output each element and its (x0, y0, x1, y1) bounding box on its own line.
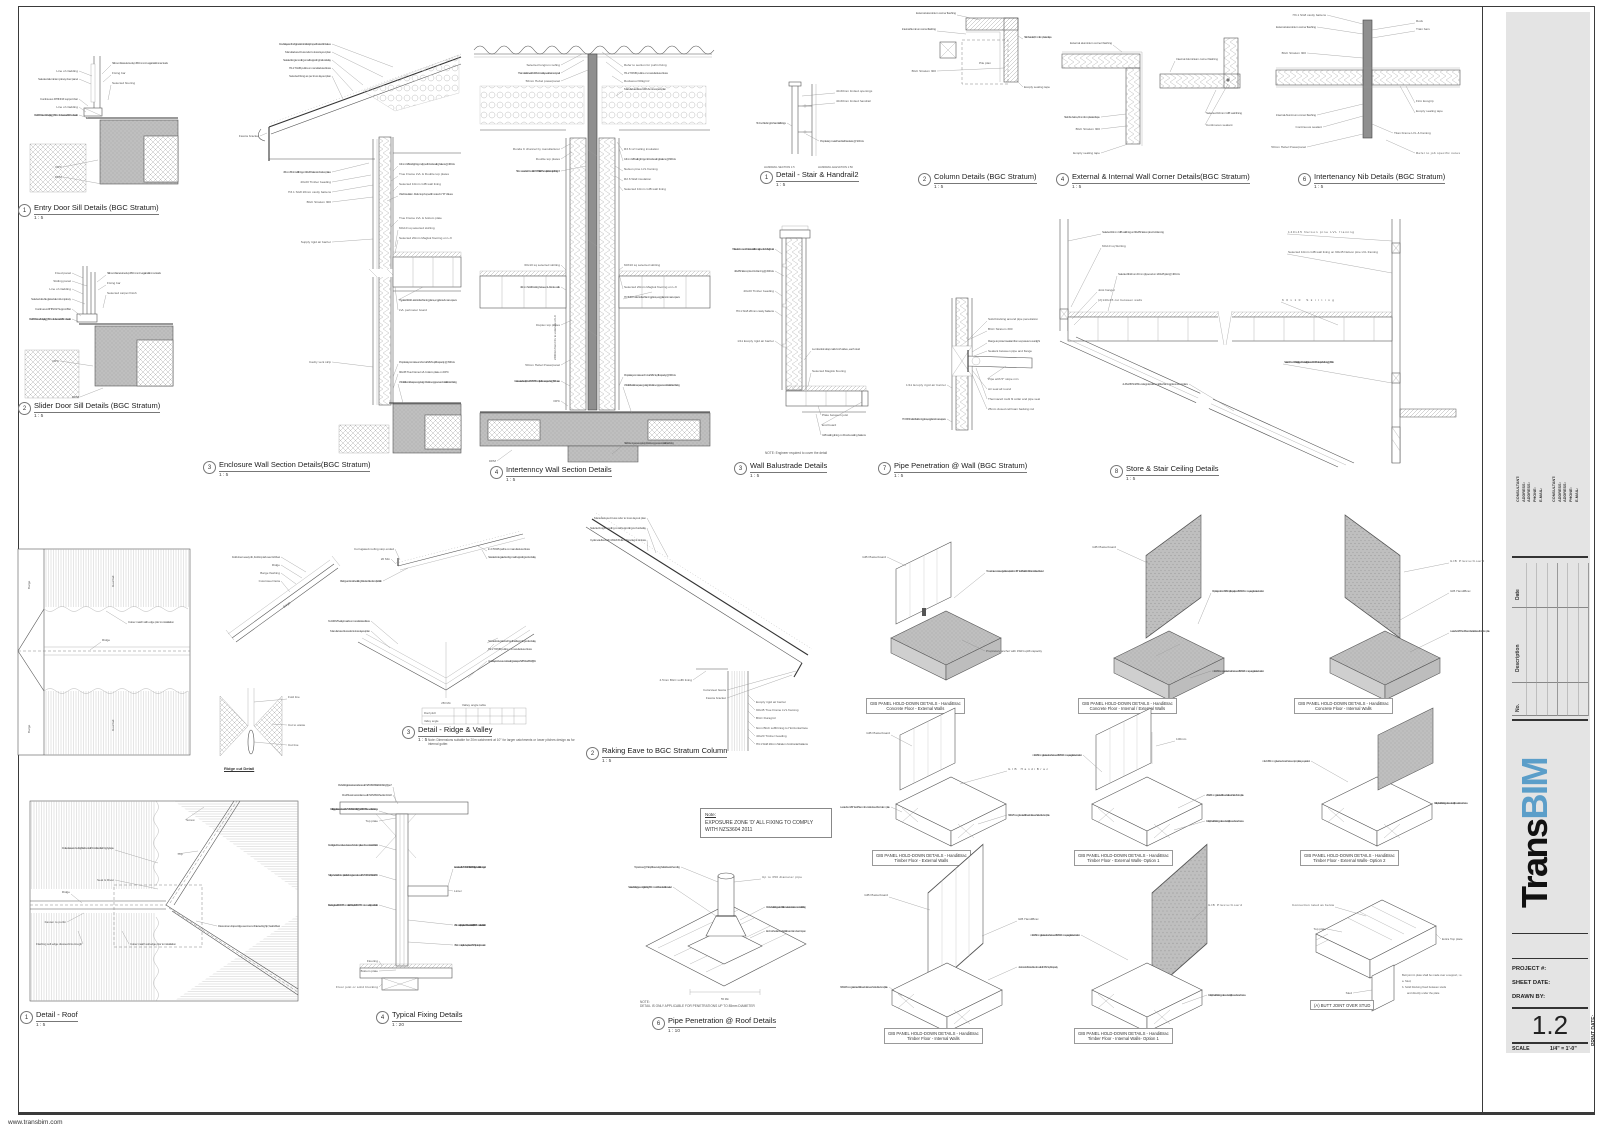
svg-text:True Frame LVL & Double top pl: True Frame LVL & Double top plates (399, 172, 449, 176)
svg-text:Double layers of Ceiling insul: Double layers of Ceiling insulation. Ref… (279, 42, 331, 46)
svg-text:Dress crown of apex ridge over: Dress crown of apex ridge over crown of … (218, 924, 280, 928)
svg-text:Plate between joist: Plate between joist (822, 413, 848, 417)
svg-text:LVL perimeter board: LVL perimeter board (399, 308, 427, 312)
svg-text:Internal Aluminium corner flas: Internal Aluminium corner flashing (1176, 57, 1218, 61)
svg-text:Fold line: Fold line (288, 695, 300, 699)
detail-scale: 1 : 5 (776, 183, 859, 188)
gib-iso-concrete-external-drawing: GIB Plasterboard To maximise concrete ed… (866, 528, 1050, 698)
consultant-block-1: CONSULTANT: ADDRESS: ADDRESS: PHONE: E-M… (1516, 476, 1544, 502)
svg-text:2400mm from FFL to underside o: 2400mm from FFL to underside of LJI (553, 315, 557, 360)
svg-text:Barge: Barge (27, 580, 31, 589)
roof-plan-drawing: Barge Roof fall Ridge Colour match with … (10, 543, 200, 763)
svg-text:Locate the GIB HandiBrac on th: Locate the GIB HandiBrac on the inside f… (840, 805, 890, 809)
wall-corner-details-drawing: External aluminium corner flashing Stab … (1056, 18, 1246, 170)
svg-text:Rafter fixing to top plates in: Rafter fixing to top plates in accordanc… (330, 807, 378, 811)
detail-number: 4 (376, 1011, 389, 1024)
svg-text:Cavity vent strip: Cavity vent strip (309, 360, 331, 364)
svg-text:Cut line: Cut line (288, 743, 299, 747)
svg-text:Ronda C channel by manufacture: Ronda C channel by manufacturer (513, 147, 560, 151)
svg-text:End notched around profile rib: End notched around profile ribs and turn… (766, 929, 806, 933)
svg-text:DPM: DPM (489, 459, 496, 463)
svg-text:Wall insulation. Refer to job: Wall insulation. Refer to job specific n… (399, 192, 453, 196)
detail-scale: 1 : 5 (34, 414, 160, 419)
svg-text:Roof fall: Roof fall (111, 575, 115, 587)
caption-roof-detail: 1 Detail - Roof1 : 5 (20, 1010, 78, 1028)
svg-text:Thermakraft coverlab 407 roof: Thermakraft coverlab 407 roof underlay o… (518, 71, 560, 75)
gib-iso-timber-internal-opt1-drawing: GIB Plasterboard m12 x 150mm galvanised … (1058, 876, 1248, 1032)
svg-text:m12 x 150mm galvanised coach s: m12 x 150mm galvanised coach screw and 5… (1032, 753, 1082, 757)
svg-text:Roof Truss in accordance with: Roof Truss in accordance with NZS3604 Se… (342, 793, 392, 797)
detail-number: 8 (1110, 465, 1123, 478)
svg-text:250 Min: 250 Min (441, 701, 451, 705)
svg-text:Plashguard or notched trailing: Plashguard or notched trailing folded an… (340, 579, 382, 583)
detail-number: 2 (918, 173, 931, 186)
svg-text:Slab thickening as per eng des: Slab thickening as per eng design. Refer… (624, 441, 674, 445)
svg-text:GIB Plasterboard: GIB Plasterboard (864, 893, 888, 897)
svg-text:Selected corrugated roofing on: Selected corrugated roofing on self supp… (488, 555, 536, 559)
detail-scale: 1 : 5 (1126, 477, 1219, 482)
svg-text:Pipe with 5° slope min: Pipe with 5° slope min (988, 377, 1019, 381)
butt-joint-label: (A) BUTT JOINT OVER STUD (1310, 1000, 1374, 1010)
svg-text:40-60mm limited openings: 40-60mm limited openings (836, 89, 873, 93)
svg-text:Roof fall: Roof fall (111, 719, 115, 731)
svg-text:BGC Stratum 300: BGC Stratum 300 (912, 69, 937, 73)
svg-text:Refer to section for purlin fi: Refer to section for purlin fixing (624, 63, 667, 67)
svg-text:Top plate: Top plate (1313, 927, 1326, 931)
svg-text:In 2 70X45 purlins on manufact: In 2 70X45 purlins on manufactured truss (488, 547, 530, 551)
note-text: DETAIL IS ONLY APPLICABLE FOR PENETRATIO… (640, 1004, 810, 1008)
detail-title: Wall Balustrade Details (750, 461, 827, 473)
store-stair-ceiling-drawing: Selected 10mm GIB wall lining on 90x45 N… (1038, 213, 1480, 467)
svg-text:Fixing bar: Fixing bar (112, 71, 126, 75)
svg-text:and directly under the plate: and directly under the plate (1407, 991, 1440, 995)
detail-number: 1 (18, 204, 31, 217)
svg-text:8G x 40 SS Screws & Rawl plug: 8G x 40 SS Screws & Rawl plug @ 150mm fr… (34, 113, 78, 117)
caption-wall-balustrade: 3 Wall Balustrade Details1 : 5 (734, 461, 827, 479)
svg-text:Doubling stud to be continuous: Doubling stud to be continuous between t… (328, 843, 378, 847)
enclosure-wall-section-drawing: Double layers of Ceiling insulation. Ref… (203, 33, 463, 447)
svg-text:DPC: DPC (52, 359, 59, 363)
caption-wall-corner: 4 External & Internal Wall Corner Detail… (1056, 172, 1250, 190)
svg-text:25mm closed cell foam backing: 25mm closed cell foam backing rod (988, 407, 1034, 411)
svg-text:Valley angle table: Valley angle table (462, 703, 486, 707)
column-details-drawing: External aluminium corner flashing Inter… (896, 8, 1054, 170)
caption-typical-fixing: 4 Typical Fixing Details1 : 20 (376, 1010, 462, 1028)
svg-text:Selected 20mm Maglok flooring: Selected 20mm Maglok flooring on LJI (399, 236, 452, 240)
detail-title: Pipe Penetration @ Roof Details (668, 1016, 776, 1028)
svg-text:Fold down every rib, Fold top: Fold down every rib, Fold top tab over &… (232, 555, 280, 559)
svg-text:Up to 350 diameter pipe: Up to 350 diameter pipe (762, 875, 802, 879)
svg-text:Colour match soft edge prior t: Colour match soft edge prior to installa… (130, 942, 176, 946)
svg-text:Selected longrun roofing on se: Selected longrun roofing on self support… (283, 58, 331, 62)
svg-text:Selected 10mm GIB wall lining: Selected 10mm GIB wall lining (399, 182, 441, 186)
svg-text:Supply rigid air barrier: Supply rigid air barrier (301, 240, 331, 244)
svg-text:Sealant between pipe and flang: Sealant between pipe and flange (988, 349, 1032, 353)
svg-text:m12 x 150mm galvanised coach s: m12 x 150mm galvanised coach screw or pr… (1262, 759, 1310, 763)
svg-text:H3.1 SG8 20mm Stratum horizont: H3.1 SG8 20mm Stratum horizontal battens (756, 742, 808, 746)
svg-text:Line of cladding: Line of cladding (56, 69, 78, 73)
svg-text:GIB Plasterboard: GIB Plasterboard (862, 555, 886, 559)
detail-scale: 1 : 5 (506, 478, 612, 483)
svg-text:Ridge: Ridge (272, 563, 280, 567)
pipe-penetration-wall-drawing: Solid blocking around pipe penetration B… (876, 290, 1048, 448)
caption-raking-eave: 2 Raking Eave to BGC Stratum Column1 : 5 (586, 746, 727, 764)
svg-text:Manufactured truss GRK & manu: Manufactured truss GRK & manu specs plan (624, 87, 666, 91)
svg-text:Continuous RHINOZ support bar: Continuous RHINOZ support bar (40, 97, 78, 101)
svg-text:8G x 40 SS Screws & Rawl plug: 8G x 40 SS Screws & Rawl plug @ 150mm fr… (29, 317, 71, 321)
detail-number: 3 (203, 461, 216, 474)
svg-text:Continuous sealant: Continuous sealant (1206, 123, 1233, 127)
caption-stair-handrail: 1 Detail - Stair & Handrail21 : 5 (760, 170, 859, 188)
svg-text:Fixed panel: Fixed panel (55, 271, 71, 275)
svg-text:GIB HandiBrac: GIB HandiBrac (1450, 589, 1471, 593)
svg-text:Stud: Stud (1346, 991, 1353, 995)
svg-text:(2)140x45 cut between walls: (2)140x45 cut between walls (1098, 298, 1142, 302)
detail-number: 1 (20, 1011, 33, 1024)
detail-title: Enclosure Wall Section Details(BGC Strat… (219, 460, 370, 472)
revision-col-date: Date (1515, 589, 1521, 600)
wall-balustrade-drawing: Half-steel cut down end of balustrade at… (726, 220, 868, 452)
svg-text:Lumberlok strap nails both sid: Lumberlok strap nails both sides, each s… (812, 347, 860, 351)
gib-iso-concrete-internal-drawing: GIB Plasterboard GIB HandiBrac Locate th… (1300, 528, 1470, 698)
transbim-logo: TransBIM (1514, 758, 1556, 908)
svg-text:Cut to waste: Cut to waste (288, 723, 305, 727)
entry-door-sill-drawing: Line of cladding Selected aluminium join… (28, 52, 180, 202)
svg-text:Underlay continuous underneath: Underlay continuous underneath gutter as… (488, 659, 536, 663)
svg-text:Selected finish on 20mm plywoo: Selected finish on 20mm plywood on 140x4… (1118, 272, 1180, 276)
svg-text:Pile plan: Pile plan (979, 61, 991, 65)
svg-text:Double top plates: Double top plates (536, 157, 561, 161)
svg-text:Internal Aluminum corner flash: Internal Aluminum corner flashing (902, 27, 936, 31)
svg-text:HYJOIST - refer to floor frami: HYJOIST - refer to floor framing plans, … (902, 417, 946, 421)
svg-text:H3.1 SG8 20mm cavity battens: H3.1 SG8 20mm cavity battens (736, 309, 774, 313)
svg-text:Nailing schedules for bottom p: Nailing schedules for bottom plate to fl… (328, 873, 378, 877)
detail-title: Entry Door Sill Details (BGC Stratum) (34, 203, 159, 215)
svg-text:Whaffle floor slab as per eng: Whaffle floor slab as per eng design. Re… (399, 380, 457, 384)
detail-scale: 1 : 5 (934, 185, 1037, 190)
detail-title: Pipe Penetration @ Wall (BGC Stratum) (894, 461, 1027, 473)
svg-text:External aluminium corner flas: External aluminium corner flashing (1070, 41, 1112, 45)
svg-text:Train bars: Train bars (1416, 27, 1430, 31)
caption-intertenancy-wall: 4 Intertenncy Wall Section Details1 : 5 (490, 465, 612, 483)
svg-text:Cyclone tie fixed with 4 30x3.: Cyclone tie fixed with 4 30x3.15 dia. na… (590, 538, 646, 542)
gib-iso-timber-external-opt1-drawing: 100mm m12 x 150mm galvanised coach screw… (1058, 712, 1248, 857)
ridge-valley-drawing: Corrugated roofing stop ended 20 Min Pla… (338, 522, 573, 727)
svg-text:Proprietary anchor with 15kN u: Proprietary anchor with 15kN uplift capa… (986, 649, 1042, 653)
butt-joint-drawing: Connection rated as below Top plate Extr… (1286, 876, 1476, 1008)
svg-text:Screw: Screw (186, 818, 195, 822)
detail-title: Store & Stair Ceiling Details (1126, 464, 1219, 476)
svg-text:DPM: DPM (72, 395, 79, 399)
svg-text:m12 x 150mm galvanised coach s: m12 x 150mm galvanised coach screw and 5… (1030, 933, 1080, 937)
svg-text:Seal & Rivet: Seal & Rivet (97, 878, 114, 882)
svg-text:40-60mm limited handrail: 40-60mm limited handrail (836, 99, 871, 103)
svg-text:Ecoply sealing tape: Ecoply sealing tape (1024, 85, 1050, 89)
svg-text:Ridge: Ridge (102, 638, 110, 642)
detail-title: Slider Door Sill Details (BGC Stratum) (34, 401, 160, 413)
svg-text:Full depth solid blocking posi: Full depth solid blocking positioned cen… (1434, 801, 1469, 805)
titleblock-rule (1512, 556, 1588, 558)
detail-scale: 1 : 5 (1314, 185, 1445, 190)
titleblock-rule (1512, 933, 1588, 934)
svg-text:Corrugated roofing stop ended: Corrugated roofing stop ended (354, 547, 394, 551)
svg-text:Selected longrun roofing: Selected longrun roofing (526, 63, 560, 67)
svg-text:6 / 30x2.5mm galvanised flat h: 6 / 30x2.5mm galvanised flat head nails … (1008, 813, 1050, 817)
revision-table-grid (1526, 563, 1589, 716)
svg-text:35x1mm strap fixed over plate: 35x1mm strap fixed over plate or a 7.5kN… (454, 943, 486, 947)
svg-text:HANDRAIL ELEVATION 1:50: HANDRAIL ELEVATION 1:50 (818, 165, 853, 169)
detail-title: Detail - Ridge & Valley (418, 725, 492, 737)
detail-title: Column Details (BGC Stratum) (934, 172, 1037, 184)
gib-label-4: GIB PANEL HOLD-DOWN DETAILS - HandiBracT… (872, 850, 971, 866)
svg-text:Extra Top plate: Extra Top plate (1442, 937, 1463, 941)
svg-text:Proprietary anchor with 15kN u: Proprietary anchor with 15kN uplift capa… (1212, 589, 1264, 593)
svg-text:Selected longrun roofing on se: Selected longrun roofing on self support… (590, 526, 646, 530)
typical-fixing-drawing: Purlins Fixing to truss in accordance wi… (316, 776, 488, 1016)
svg-text:Continuous sealant: Continuous sealant (1296, 125, 1323, 129)
consultant-block-2: CONSULTANT: ADDRESS: ADDRESS: PHONE: E-M… (1552, 476, 1580, 502)
svg-text:External aluminium corner flas: External aluminium corner flashing (916, 11, 956, 15)
gib-iso-concrete-int-ext-drawing: GIB Plasterboard Proprietary anchor with… (1086, 528, 1270, 698)
svg-text:50mm Hebel Powerpanel: 50mm Hebel Powerpanel (1271, 145, 1306, 149)
detail-scale: 1 : 5 (34, 216, 159, 221)
svg-text:True Frame LVL & bottom plate: True Frame LVL & bottom plate (399, 216, 442, 220)
svg-text:Firm Ecogrip: Firm Ecogrip (1416, 99, 1434, 103)
svg-text:140x45 Nelson pine LVL framing: 140x45 Nelson pine LVL framing (1288, 230, 1354, 234)
svg-text:Manufactured truss refer to tr: Manufactured truss refer to truss layout… (285, 50, 331, 54)
svg-text:20 Min: 20 Min (381, 557, 391, 561)
svg-text:R3.6 x2 Ceiling insulation: R3.6 x2 Ceiling insulation (624, 147, 659, 151)
caption-store-stair: 8 Store & Stair Ceiling Details1 : 5 (1110, 464, 1219, 482)
svg-text:13mm GIB ceiling lining on Ron: 13mm GIB ceiling lining on Ronda ceiling… (624, 157, 676, 161)
sheet-date-label: SHEET DATE: (1512, 980, 1550, 986)
svg-text:GIB Plasterboard: GIB Plasterboard (1450, 559, 1484, 563)
svg-text:6 x 100X25 valley boards on ma: 6 x 100X25 valley boards on manufactured… (328, 619, 370, 623)
ridge-cut-caption: Ridge cut Detail (224, 766, 254, 771)
detail-scale: 1 : 5 (602, 759, 727, 764)
caption-enclosure-wall: 3 Enclosure Wall Section Details(BGC Str… (203, 460, 370, 478)
detail-title: Detail - Roof (36, 1010, 78, 1022)
svg-text:Barge: Barge (27, 724, 31, 733)
detail-number: 3 (734, 462, 747, 475)
svg-text:2 / 30x2.5mm galvanised flat h: 2 / 30x2.5mm galvanised flat head nails … (1206, 793, 1244, 797)
svg-text:60x10 Skirting: 60x10 Skirting (1282, 298, 1334, 302)
svg-text:BGC Duragrid: BGC Duragrid (756, 716, 776, 720)
svg-text:BGC Stratum 300: BGC Stratum 300 (988, 327, 1013, 331)
svg-text:Rockwool 60kg/m³: Rockwool 60kg/m³ (624, 79, 649, 83)
stair-handrail-drawing: 40-60mm limited openings 40-60mm limited… (746, 76, 871, 176)
svg-text:Line of cladding: Line of cladding (49, 287, 71, 291)
detail-scale: 1 : 10 (668, 1029, 776, 1034)
svg-text:40mm Solid blocking between LJ: 40mm Solid blocking between LJIs to tie … (520, 285, 560, 289)
detail-scale: 1 : 5 (750, 474, 827, 479)
svg-text:Selected 20mm Maglok flooring: Selected 20mm Maglok flooring on LJI (624, 285, 677, 289)
revision-col-no: No. (1515, 704, 1521, 712)
svg-text:Sliding panel: Sliding panel (53, 279, 71, 283)
svg-text:Colorsteel facia: Colorsteel facia (259, 579, 281, 583)
svg-text:50mm Hebel Powerpanel: 50mm Hebel Powerpanel (525, 363, 560, 367)
svg-text:External aluminium corner flas: External aluminium corner flashing (1276, 25, 1316, 29)
detail-title: Detail - Stair & Handrail2 (776, 170, 859, 182)
svg-text:Air seal all round: Air seal all round (988, 387, 1011, 391)
svg-text:25x1mm strap fixed over plate: 25x1mm strap fixed over plate and 100 on… (454, 923, 486, 927)
svg-text:Selected Maglok flooring: Selected Maglok flooring (812, 369, 846, 373)
detail-number: 4 (1056, 173, 1069, 186)
pipe-penetration-roof-drawing: 55 Min Top screws @ Will uphills securin… (630, 850, 818, 1008)
svg-text:60x10 sq selected skirting: 60x10 sq selected skirting (399, 226, 435, 230)
svg-text:BGC Stratum 300: BGC Stratum 300 (307, 200, 332, 204)
detail-scale: 1 : 20 (392, 1023, 462, 1028)
pipe-roof-note: NOTE: DETAIL IS ONLY APPLICABLE FOR PENE… (640, 1000, 810, 1008)
svg-text:4.5mm BGC soffit lining on 90x: 4.5mm BGC soffit lining on 90x45 battens… (283, 170, 331, 174)
svg-text:Hyjoist 240x90 - refer to floo: Hyjoist 240x90 - refer to floor framing … (399, 298, 457, 302)
svg-text:Connection rated as below: Connection rated as below (1292, 903, 1335, 907)
svg-text:40x20 Timber beading: 40x20 Timber beading (300, 180, 331, 184)
detail-title: Intertenancy Nib Details (BGC Stratum) (1314, 172, 1445, 184)
svg-text:Selected 10mm GIB wall lining: Selected 10mm GIB wall lining on 90x45 N… (1102, 230, 1164, 234)
svg-text:Hip: Hip (178, 852, 183, 856)
svg-text:Selected 10mm GIB wall lining: Selected 10mm GIB wall lining (1206, 111, 1242, 115)
detail-scale: 1 : 5 (1072, 185, 1250, 190)
svg-text:Ridge: Ridge (62, 890, 70, 894)
svg-text:Flooring: Flooring (367, 959, 378, 963)
svg-text:Continuous RHINOZ Support Bar: Continuous RHINOZ Support Bar (35, 307, 71, 311)
gib-label-8: GIB PANEL HOLD-DOWN DETAILS - HandiBracT… (1074, 1028, 1173, 1044)
svg-text:Valley angle: Valley angle (424, 719, 439, 723)
svg-text:Fasten to purlin: Fasten to purlin (45, 920, 67, 924)
ridge-cut-detail-drawing: Fold line Cut to waste Cut line (212, 680, 290, 772)
titleblock-rule (1512, 958, 1588, 959)
svg-text:Manufactured truss refer to tr: Manufactured truss refer to truss layout… (594, 516, 646, 520)
scale-value: 1/4" = 1'-0" (1550, 1046, 1577, 1052)
svg-text:Selected 10mm GIB raking linin: Selected 10mm GIB raking lining on Ronda… (1284, 360, 1334, 364)
scale-label: SCALE (1512, 1046, 1530, 1052)
svg-text:60x10 sq Skirting: 60x10 sq Skirting (1102, 244, 1126, 248)
svg-text:Selected 10mm GIB wall lining: Selected 10mm GIB wall lining (624, 187, 666, 191)
project-number-label: PROJECT #: (1512, 966, 1546, 972)
website-link: www.transbim.com (8, 1119, 63, 1126)
svg-text:Purlins Fixing to truss in acc: Purlins Fixing to truss in accordance wi… (338, 783, 392, 787)
svg-text:End board: End board (822, 423, 837, 427)
svg-text:GIB Plasterboard: GIB Plasterboard (1208, 903, 1242, 907)
gib-iso-timber-external-drawing: GIB Plasterboard GIB HandiBrac Locate th… (868, 712, 1054, 857)
gib-label-5: GIB PANEL HOLD-DOWN DETAILS - HandiBracT… (1074, 850, 1173, 866)
svg-text:Butt joint in plate shall be m: Butt joint in plate shall be made over a… (1402, 973, 1463, 977)
svg-text:BGC Stratum 300: BGC Stratum 300 (1282, 51, 1307, 55)
svg-text:1/11 Ecoply rigid air barrier: 1/11 Ecoply rigid air barrier (737, 339, 774, 343)
svg-text:BGC Stratum 300: BGC Stratum 300 (1076, 127, 1101, 131)
titleblock-rule (1512, 719, 1588, 721)
detail-number: 2 (18, 402, 31, 415)
svg-text:90x45 True Frame LVL bottom pl: 90x45 True Frame LVL bottom plate on DPC (399, 370, 450, 374)
svg-text:Manufactured truss refer to tr: Manufactured truss refer to truss layout… (330, 629, 370, 633)
caption-entry-door-sill: 1 Entry Door Sill Details (BGC Stratum)1… (18, 203, 159, 221)
svg-text:Locate the GIB HandiBrac on th: Locate the GIB HandiBrac on the inside f… (1450, 629, 1490, 633)
svg-text:Colorsteel fascia: Colorsteel fascia (703, 688, 726, 692)
svg-text:4.5mm BGC soffit lining: 4.5mm BGC soffit lining (660, 678, 693, 682)
revision-col-description: Description (1515, 644, 1521, 672)
svg-text:Jack stud or first stud fixed: Jack stud or first stud fixed to wall wi… (1018, 965, 1058, 969)
svg-text:HANDRAIL SECTION 1:5: HANDRAIL SECTION 1:5 (764, 165, 795, 169)
svg-text:Sill membrane turned up 150mm: Sill membrane turned up 150mm min. again… (112, 61, 168, 65)
svg-text:90x45 True Frame LVL framing: 90x45 True Frame LVL framing (756, 708, 799, 712)
svg-text:6mm BGC soffit lining to Horiz: 6mm BGC soffit lining to Horizontal face (756, 726, 808, 730)
svg-text:Fascia bracket: Fascia bracket (239, 134, 259, 138)
svg-text:DPC: DPC (55, 165, 62, 169)
detail-scale: 1 : 5 (418, 738, 492, 743)
svg-text:Top plate: Top plate (365, 819, 378, 823)
svg-text:Ecoply sealing tape: Ecoply sealing tape (1416, 109, 1443, 113)
note-body: EXPOSURE ZONE 'D' ALL FIXING TO COMPLY W… (705, 820, 827, 834)
svg-text:Thermacell multi fit collar an: Thermacell multi fit collar and pipe sea… (988, 397, 1040, 401)
svg-text:b. Solid blocking fixed betwe: b. Solid blocking fixed between studs (1402, 985, 1447, 989)
gib-iso-timber-external-opt2-drawing: m12 x 150mm galvanised coach screw or pr… (1288, 712, 1470, 857)
svg-text:Selected aluminium joinery doo: Selected aluminium joinery door panel (38, 77, 78, 81)
svg-text:HYJOIST - refer to floor frami: HYJOIST - refer to floor framing plans, … (624, 295, 680, 299)
svg-text:Colour match with edge prior t: Colour match with edge prior to installa… (128, 620, 174, 624)
svg-text:Selected carpet finish: Selected carpet finish (107, 291, 137, 295)
svg-text:Lintel: Lintel (454, 889, 462, 893)
svg-text:Titan Frame LVL & framing: Titan Frame LVL & framing (1394, 131, 1431, 135)
svg-text:Nelson pine LVL framing: Nelson pine LVL framing (624, 167, 658, 171)
slider-door-sill-drawing: Fixed panel Sliding panel Line of claddi… (23, 262, 175, 402)
print-date-label: PRINT DATE: (1591, 1015, 1597, 1046)
detail-scale: 1 : 5 (36, 1023, 78, 1028)
drawn-by-label: DRAWN BY: (1512, 994, 1545, 1000)
svg-text:Selected flashing tape on ridg: Selected flashing tape on ridge flashing… (628, 885, 672, 889)
svg-text:100mm: 100mm (1176, 737, 1187, 741)
raking-eave-drawing: Manufactured truss refer to truss layout… (576, 503, 814, 755)
detail-number: 1 (760, 171, 773, 184)
svg-text:Proprietary concrete anchor wi: Proprietary concrete anchor with 8kN upl… (399, 360, 455, 364)
detail-number: 4 (490, 466, 503, 479)
svg-text:GIB Plasterboard: GIB Plasterboard (866, 731, 890, 735)
caption-intertenancy-nib: 6 Intertenancy Nib Details (BGC Stratum)… (1298, 172, 1445, 190)
svg-text:Flashing soft edge dressed int: Flashing soft edge dressed into trough (36, 942, 82, 946)
roof-detail-drawing: Screw Hip Dotted area to be fully flashe… (18, 793, 310, 1013)
gib-label-7: GIB PANEL HOLD-DOWN DETAILS - HandiBracT… (884, 1028, 983, 1044)
svg-text:Ecoply rigid air barrier: Ecoply rigid air barrier (756, 700, 786, 704)
detail-number: 6 (652, 1017, 665, 1030)
svg-text:JL 45x245 SG8 Boundary joist,: JL 45x245 SG8 Boundary joist, refer to m… (1122, 382, 1188, 386)
svg-text:Proprietary metal handrail bra: Proprietary metal handrail brackets @ 90… (820, 139, 864, 143)
svg-text:1/11 Ecoply rigid air barrier: 1/11 Ecoply rigid air barrier (906, 383, 946, 387)
svg-text:Floor joist or solid blocking: Floor joist or solid blocking (336, 985, 378, 989)
svg-text:Rock: Rock (1416, 19, 1424, 23)
caption-pipe-wall: 7 Pipe Penetration @ Wall (BGC Stratum)1… (878, 461, 1027, 479)
detail-title: Typical Fixing Details (392, 1010, 462, 1022)
detail-title: External & Internal Wall Corner Details(… (1072, 172, 1250, 184)
svg-text:Ecoply sealing tape: Ecoply sealing tape (1073, 151, 1100, 155)
intertenancy-nib-drawing: H3.1 SG8 cavity battens External alumini… (1266, 8, 1468, 170)
exposure-note-box: Note: EXPOSURE ZONE 'D' ALL FIXING TO CO… (700, 808, 832, 838)
svg-text:Refer to job specific notes: Refer to job specific notes (1416, 151, 1460, 155)
svg-text:Dotted area to be fully flashe: Dotted area to be fully flashed with hot… (62, 846, 114, 850)
svg-text:GIB Plasterboard: GIB Plasterboard (1092, 545, 1116, 549)
svg-text:Whaffle floor slab as per eng: Whaffle floor slab as per eng design. Re… (624, 383, 680, 387)
svg-text:GIB HandiBrac: GIB HandiBrac (1008, 767, 1048, 771)
drawing-sheet: Line of cladding Selected aluminium join… (0, 0, 1600, 1130)
svg-text:Selected flooring: Selected flooring (112, 81, 135, 85)
svg-text:H1.2 70X45 purlins on manufact: H1.2 70X45 purlins on manufactured truss (624, 71, 668, 75)
detail-title: Raking Eave to BGC Stratum Column (602, 746, 727, 758)
gib-iso-timber-internal-drawing: GIB Plasterboard GIB HandiBrac Jack stud… (868, 876, 1058, 1032)
svg-text:Stab the below, 8mm from plast: Stab the below, 8mm from plasterd tape (1064, 115, 1100, 119)
svg-text:Roof pitch: Roof pitch (424, 711, 437, 715)
svg-text:GIB HandiBrac: GIB HandiBrac (1018, 917, 1039, 921)
svg-text:Internal Aluminum corner flash: Internal Aluminum corner flashing (1276, 113, 1316, 117)
svg-text:m12 x 150mm galvanised coach s: m12 x 150mm galvanised coach screw and 5… (1212, 669, 1264, 673)
